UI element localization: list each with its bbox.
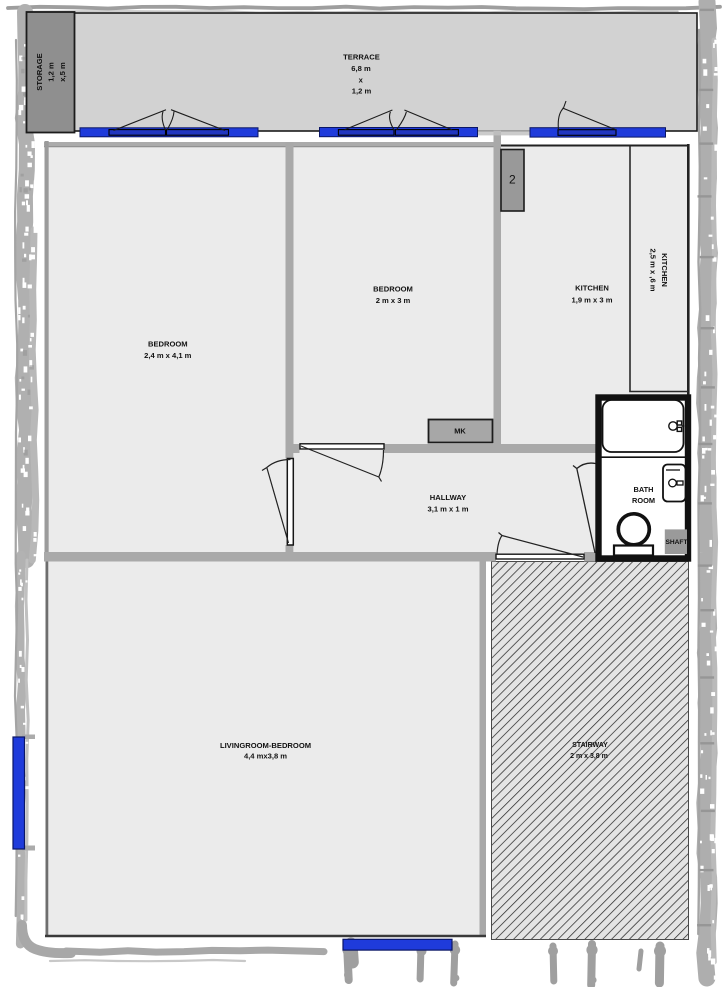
svg-text:2,4 m x 4,1 m: 2,4 m x 4,1 m (144, 351, 192, 360)
svg-text:2 m x 3,8 m: 2 m x 3,8 m (570, 753, 608, 760)
svg-text:STAIRWAY: STAIRWAY (572, 742, 608, 749)
svg-text:HALLWAY: HALLWAY (430, 493, 466, 502)
svg-text:BEDROOM: BEDROOM (373, 285, 413, 294)
svg-text:BATH: BATH (634, 485, 654, 494)
svg-text:2,5 m x ,6 m: 2,5 m x ,6 m (649, 248, 658, 291)
svg-text:MK: MK (454, 427, 466, 436)
svg-text:BEDROOM: BEDROOM (148, 340, 188, 349)
svg-text:1,2 m: 1,2 m (352, 87, 372, 96)
svg-text:6,8 m: 6,8 m (351, 64, 371, 73)
svg-text:TERRACE: TERRACE (343, 53, 380, 62)
svg-text:2 m x 3 m: 2 m x 3 m (376, 296, 411, 305)
svg-text:SHAFT: SHAFT (666, 539, 688, 546)
svg-text:x,5 m: x,5 m (58, 62, 67, 82)
svg-text:4,4 mx3,8 m: 4,4 mx3,8 m (244, 752, 287, 761)
svg-text:STORAGE: STORAGE (35, 53, 44, 90)
svg-text:KITCHEN: KITCHEN (660, 253, 669, 287)
svg-text:1,2 m: 1,2 m (47, 62, 56, 82)
svg-text:KITCHEN: KITCHEN (575, 284, 609, 293)
svg-text:2: 2 (509, 173, 516, 187)
svg-text:3,1 m x 1 m: 3,1 m x 1 m (428, 505, 469, 514)
svg-text:ROOM: ROOM (632, 496, 655, 505)
svg-text:LIVINGROOM-BEDROOM: LIVINGROOM-BEDROOM (220, 741, 311, 750)
svg-text:1,9 m x 3 m: 1,9 m x 3 m (572, 296, 613, 305)
